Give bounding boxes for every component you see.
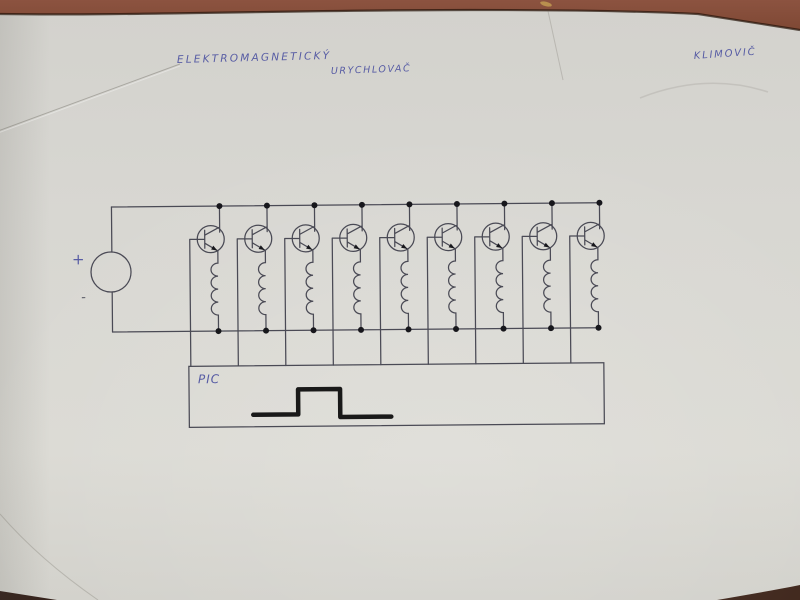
junction-dot (216, 203, 222, 209)
junction-dot (263, 328, 269, 334)
junction-dot (359, 202, 365, 208)
junction-dot (501, 326, 507, 332)
plus-label: + (72, 250, 85, 268)
junction-dot (501, 201, 507, 207)
junction-dot (216, 328, 222, 334)
paper-sheen (0, 14, 800, 600)
pic-label: PIC (198, 372, 220, 386)
photo-canvas: ELEKTROMAGNETICKÝ URYCHLOVAČ KLIMOVIČ + … (0, 0, 800, 600)
junction-dot (595, 325, 601, 331)
junction-dot (311, 202, 317, 208)
minus-label: - (81, 290, 86, 305)
junction-dot (264, 203, 270, 209)
junction-dot (549, 200, 555, 206)
junction-dot (406, 326, 412, 332)
junction-dot (453, 326, 459, 332)
junction-dot (358, 327, 364, 333)
junction-dot (454, 201, 460, 207)
junction-dot (311, 327, 317, 333)
junction-dot (596, 200, 602, 206)
junction-dot (406, 201, 412, 207)
junction-dot (548, 325, 554, 331)
